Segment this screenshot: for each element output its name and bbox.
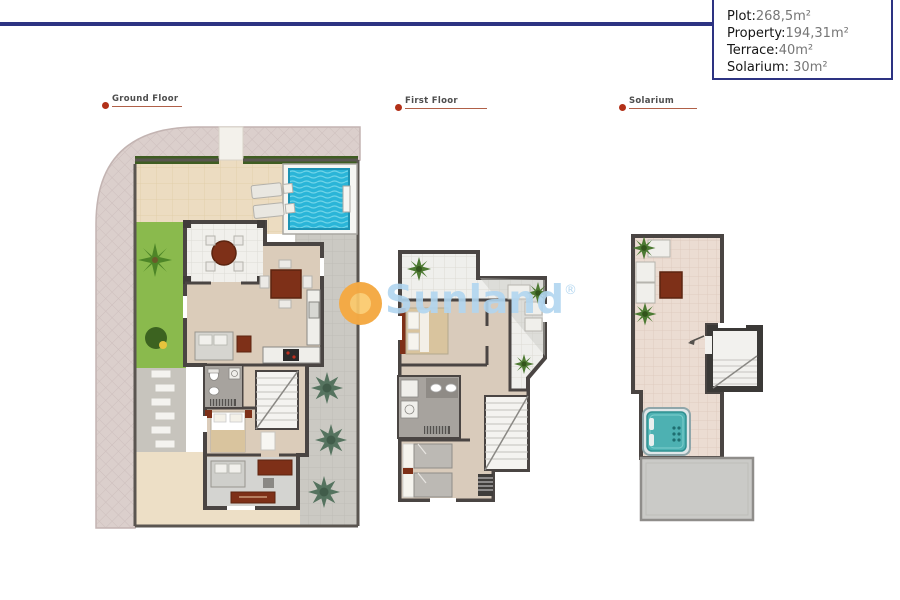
porch — [183, 220, 265, 284]
desk — [258, 460, 292, 475]
lower-roof — [641, 458, 753, 520]
label-solarium: Solarium — [629, 96, 697, 109]
gate-path — [219, 127, 243, 160]
coffee-table — [237, 336, 251, 352]
nightstand — [403, 468, 413, 474]
marker-dot-icon — [102, 102, 109, 109]
stair-enclosure — [705, 323, 760, 389]
palm-tree — [138, 243, 172, 277]
label-underline — [629, 108, 697, 109]
marker-dot-icon — [619, 104, 626, 111]
bathroom — [398, 376, 460, 438]
header-divider — [0, 22, 712, 26]
staircase — [485, 396, 528, 470]
info-value: 40m² — [779, 43, 813, 58]
office-room — [207, 457, 296, 506]
property-info-box: Plot:268,5m²Property:194,31m²Terrace:40m… — [712, 0, 893, 80]
info-row-plot: Plot:268,5m² — [727, 8, 891, 25]
plan-label-text: First Floor — [405, 96, 458, 106]
info-label: Plot: — [727, 9, 756, 24]
registered-mark: ® — [564, 283, 577, 298]
info-value: 268,5m² — [756, 9, 811, 24]
jacuzzi — [643, 408, 690, 455]
desk-chair — [263, 478, 274, 488]
hall-door — [261, 432, 275, 450]
radiator — [478, 474, 493, 496]
info-label: Terrace: — [727, 43, 779, 58]
side-paving — [135, 368, 186, 452]
info-row-solarium: Solarium: 30m² — [727, 59, 891, 76]
solarium-plan — [618, 232, 768, 528]
marker-dot-icon — [395, 104, 402, 111]
plan-label-text: Solarium — [629, 96, 674, 106]
driveway-tree — [308, 476, 340, 508]
plant — [514, 354, 534, 374]
plant — [634, 303, 657, 326]
label-underline — [112, 106, 182, 107]
info-value: 194,31m² — [785, 26, 848, 41]
info-label: Solarium: — [727, 60, 789, 75]
round-table — [212, 241, 236, 265]
coffee-table — [660, 272, 682, 298]
floorplan-page: Plot:268,5m²Property:194,31m²Terrace:40m… — [0, 0, 900, 600]
info-row-property: Property:194,31m² — [727, 25, 891, 42]
garden-bush — [145, 327, 167, 349]
driveway-tree — [315, 424, 347, 456]
swimming-pool — [283, 164, 357, 234]
plant — [407, 257, 431, 281]
info-value: 30m² — [789, 60, 828, 75]
label-first-floor: First Floor — [405, 96, 487, 109]
staircase — [256, 371, 298, 429]
bathroom — [205, 366, 242, 407]
info-row-terrace: Terrace:40m² — [727, 42, 891, 59]
label-underline — [405, 108, 487, 109]
ground-floor-plan — [93, 120, 363, 532]
info-label: Property: — [727, 26, 785, 41]
first-floor-plan — [390, 246, 565, 512]
driveway-tree — [311, 372, 343, 404]
sink — [309, 302, 319, 318]
stove — [283, 349, 299, 361]
label-ground-floor: Ground Floor — [112, 94, 182, 107]
plan-label-text: Ground Floor — [112, 94, 178, 104]
